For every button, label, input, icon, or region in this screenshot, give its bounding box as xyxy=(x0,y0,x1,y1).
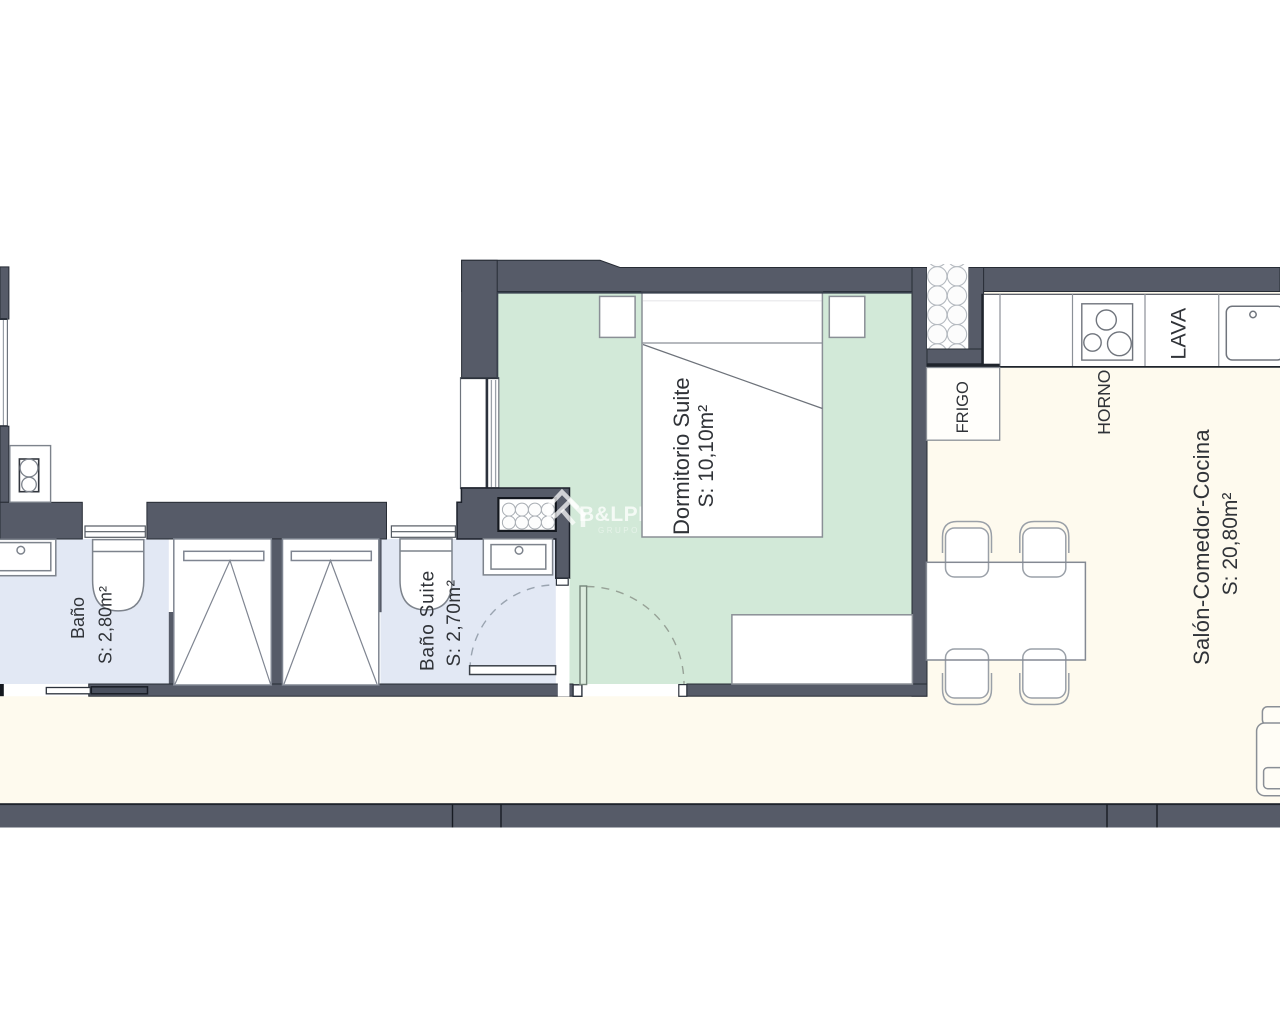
svg-text:Baño: Baño xyxy=(68,597,88,639)
svg-text:Dormitorio Suite: Dormitorio Suite xyxy=(669,377,694,535)
svg-text:S: 2,70m²: S: 2,70m² xyxy=(444,580,465,667)
svg-text:S: 10,10m²: S: 10,10m² xyxy=(695,405,718,508)
svg-text:LAVA: LAVA xyxy=(1167,307,1191,359)
svg-text:S: 2,80m²: S: 2,80m² xyxy=(96,586,116,664)
svg-text:Salón-Comedor-Cocina: Salón-Comedor-Cocina xyxy=(1189,429,1214,665)
svg-text:Baño Suite: Baño Suite xyxy=(418,570,439,671)
svg-text:HORNO: HORNO xyxy=(1094,370,1114,435)
svg-text:S: 20,80m²: S: 20,80m² xyxy=(1219,493,1242,596)
svg-text:FRIGO: FRIGO xyxy=(954,381,972,433)
